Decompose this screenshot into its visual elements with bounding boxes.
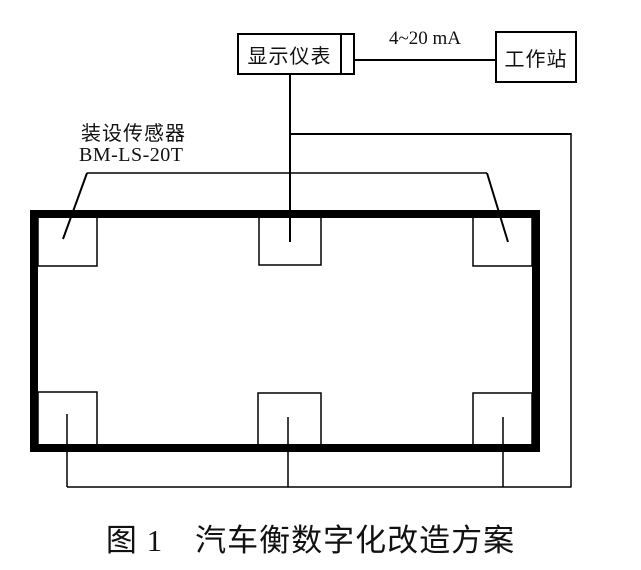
sensor-top-right xyxy=(473,214,532,266)
sensor-top-middle xyxy=(259,214,321,265)
sensor-bottom-left xyxy=(38,392,97,448)
display-instrument-box: 显示仪表 xyxy=(237,33,355,75)
weighbridge-platform-outline xyxy=(34,214,536,448)
workstation-box: 工作站 xyxy=(495,31,577,83)
sensor-bottom-middle xyxy=(258,393,321,448)
current-loop-label: 4~20 mA xyxy=(355,28,495,50)
workstation-label: 工作站 xyxy=(505,43,568,72)
sensor-annotation-line1: 装设传感器 xyxy=(81,117,186,146)
leader-line-to-top-right-sensor xyxy=(487,173,508,242)
sensor-top-left xyxy=(38,214,97,266)
sensor-bottom-right xyxy=(473,393,532,448)
display-box-divider xyxy=(340,35,342,73)
figure-caption: 图 1 汽车衡数字化改造方案 xyxy=(0,515,631,560)
display-instrument-label: 显示仪表 xyxy=(239,35,340,73)
diagram-line-layer xyxy=(0,0,641,570)
leader-line-to-top-left-sensor xyxy=(63,173,87,239)
figure-truck-scale-retrofit-diagram: 显示仪表 工作站 4~20 mA 装设传感器 BM-LS-20T 图 1 汽车衡… xyxy=(0,0,641,570)
sensor-annotation-line2: BM-LS-20T xyxy=(79,144,184,167)
